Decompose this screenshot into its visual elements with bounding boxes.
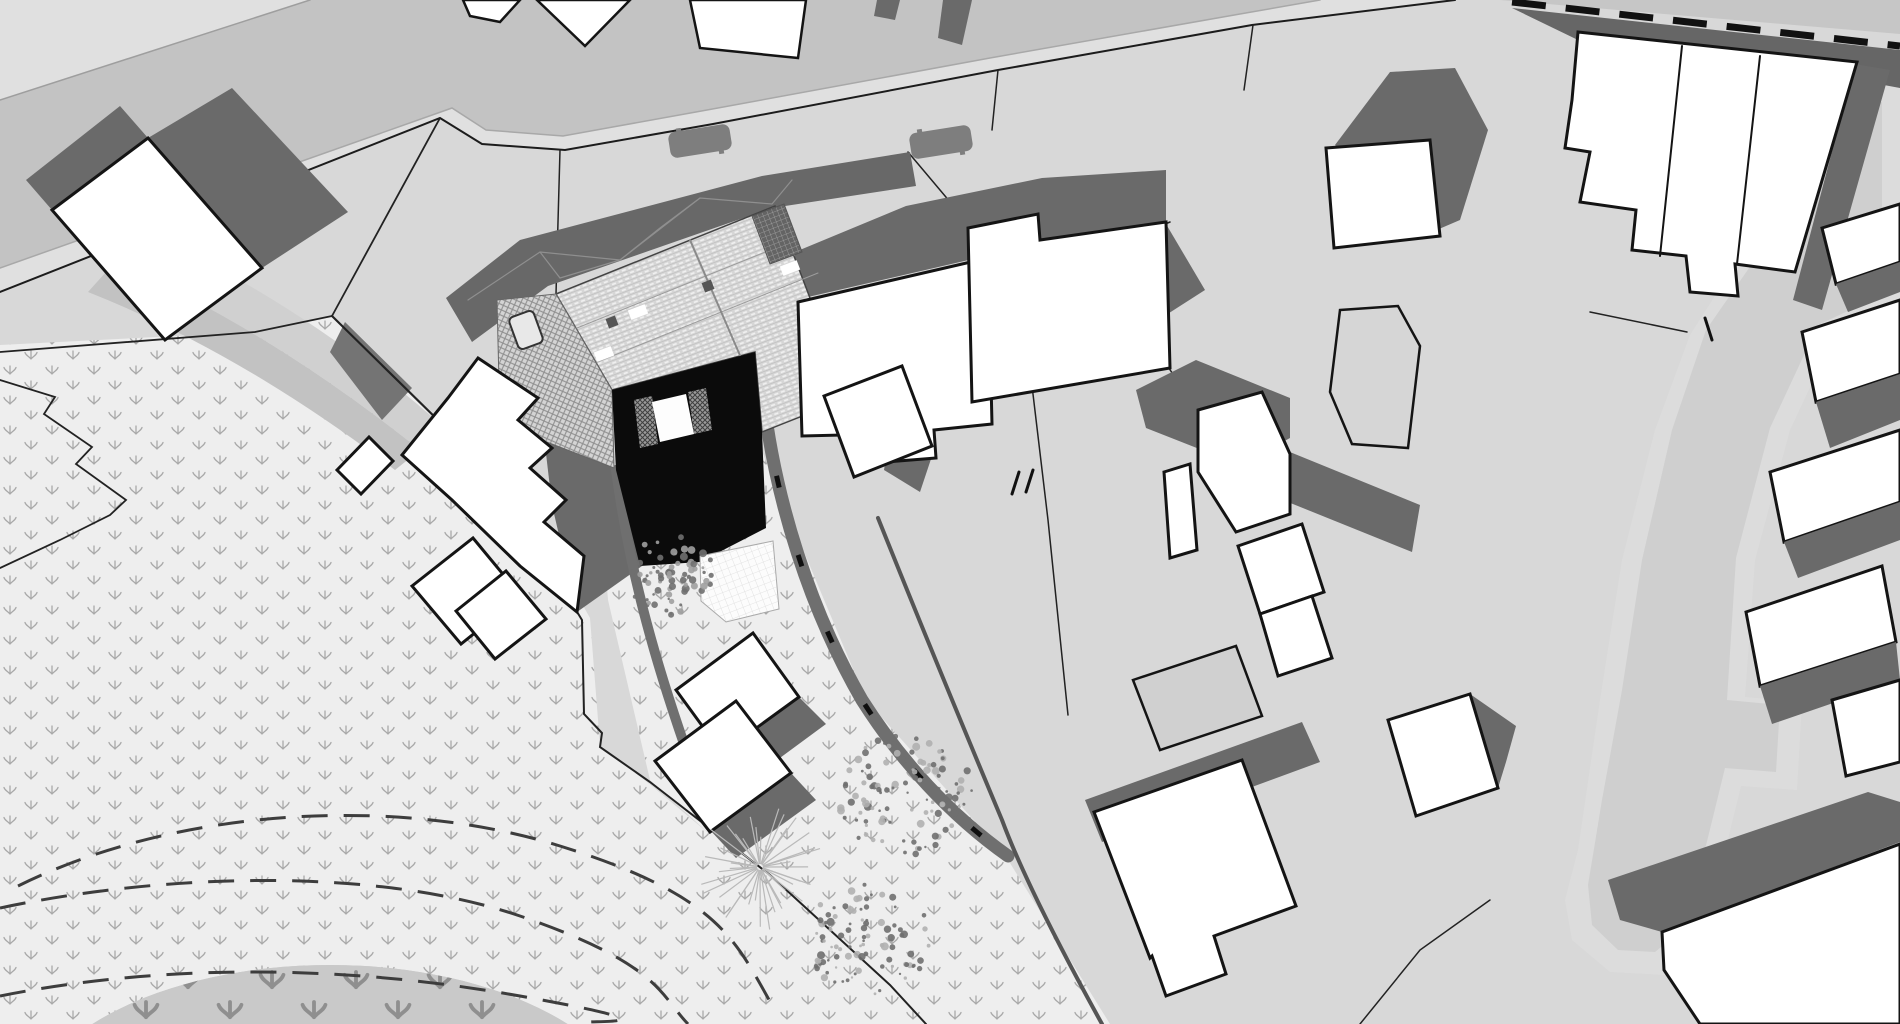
bush-cluster-dot (669, 564, 675, 570)
parcel-hexagon (1330, 306, 1420, 448)
tree-foliage-2-dot (846, 927, 852, 933)
bush-cluster-dot (656, 541, 660, 545)
tree-foliage-2-dot (878, 919, 885, 926)
tree-foliage-1-dot (932, 833, 939, 840)
tree-foliage-2-dot (817, 917, 823, 923)
tree-foliage-1-dot (924, 846, 926, 848)
tree-foliage-2-dot (888, 934, 895, 941)
tree-foliage-1-dot (875, 737, 882, 744)
bush-cluster-dot (680, 553, 688, 561)
tree-foliage-2-dot (861, 925, 867, 931)
tree-foliage-1-dot (917, 759, 923, 765)
tree-foliage-1-dot (935, 810, 942, 817)
tree-foliage-2-dot (827, 959, 830, 962)
tree-foliage-1-dot (861, 770, 864, 773)
bush-cluster-dot (646, 574, 649, 577)
tree-foliage-2-dot (922, 913, 927, 918)
building-b2 (968, 214, 1170, 402)
tree-foliage-2-dot (826, 912, 832, 918)
tree-foliage-1-dot (894, 750, 901, 757)
bush-cluster-dot (657, 555, 663, 561)
tree-foliage-2-dot (833, 980, 836, 983)
tree-foliage-1-dot (866, 774, 873, 781)
tree-foliage-2-dot (825, 971, 829, 975)
tree-foliage-2-dot (822, 939, 825, 942)
tree-foliage-1-dot (855, 819, 858, 822)
tree-foliage-1-dot (857, 836, 861, 840)
tree-foliage-1-dot (858, 811, 862, 815)
bush-cluster-dot (642, 542, 648, 548)
tree-foliage-1-dot (878, 809, 881, 812)
tree-foliage-1-dot (913, 775, 919, 781)
tree-foliage-2-dot (854, 972, 857, 975)
car-1-mirror-right (719, 149, 725, 154)
tree-foliage-2-dot (864, 896, 869, 901)
bush-cluster-dot (649, 571, 652, 574)
tree-foliage-2-dot (904, 962, 909, 967)
bush-cluster-dot (702, 571, 705, 574)
bush-cluster-dot (668, 598, 670, 600)
bush-cluster-dot (658, 575, 664, 581)
bush-cluster-dot (652, 566, 655, 569)
tree-foliage-1-dot (932, 842, 938, 848)
tree-foliage-2-dot (815, 932, 818, 935)
tree-foliage-2-dot (835, 966, 837, 968)
tree-foliage-1-dot (930, 810, 933, 813)
tree-foliage-2-dot (841, 980, 844, 983)
tree-foliage-2-dot (830, 946, 833, 949)
tree-foliage-1-dot (843, 782, 848, 787)
tree-foliage-2-dot (912, 965, 915, 968)
tree-foliage-1-dot (912, 769, 917, 774)
tree-foliage-1-dot (923, 767, 930, 774)
bush-cluster-dot (688, 567, 695, 574)
tree-foliage-2-dot (874, 992, 877, 995)
tree-foliage-1-dot (892, 741, 897, 746)
bush-cluster-dot (651, 601, 658, 608)
bush-cluster-dot (646, 598, 649, 601)
tree-foliage-1-dot (885, 806, 890, 811)
tree-foliage-1-dot (866, 763, 872, 769)
tree-foliage-1-dot (902, 839, 905, 842)
tree-foliage-1-dot (932, 767, 940, 775)
tree-foliage-2-dot (834, 944, 839, 949)
tree-foliage-1-dot (951, 810, 958, 817)
tree-foliage-1-dot (846, 767, 852, 773)
tree-foliage-1-dot (880, 839, 884, 843)
tree-foliage-2-dot (863, 883, 867, 887)
building-top-frag-2 (690, 0, 806, 58)
tree-foliage-1-dot (911, 839, 916, 844)
tree-foliage-2-dot (899, 973, 901, 975)
tree-foliage-1-dot (962, 803, 965, 806)
bush-cluster-dot (675, 561, 680, 566)
tree-foliage-2-dot (833, 914, 838, 919)
tree-foliage-1-dot (865, 824, 868, 827)
tree-foliage-2-dot (890, 944, 896, 950)
tree-foliage-2-dot (880, 943, 885, 948)
bush-cluster-dot (655, 587, 662, 594)
tree-foliage-1-dot (939, 766, 946, 773)
tree-foliage-1-dot (949, 823, 954, 828)
bush-cluster-dot (699, 549, 707, 557)
tree-foliage-1-dot (937, 749, 942, 754)
tree-foliage-1-dot (955, 782, 959, 786)
tree-foliage-2-dot (860, 908, 863, 911)
tree-foliage-1-dot (861, 797, 866, 802)
bush-cluster-dot (666, 592, 672, 598)
bush-cluster-dot (637, 560, 643, 566)
bush-cluster-dot (637, 572, 642, 577)
tree-foliage-2-dot (838, 933, 844, 939)
tree-foliage-1-dot (931, 800, 935, 804)
bush-cluster-dot (677, 608, 683, 614)
tree-foliage-1-dot (903, 781, 908, 786)
bush-cluster-dot (678, 534, 684, 540)
tree-foliage-2-dot (851, 976, 853, 978)
bush-cluster-dot (688, 546, 696, 554)
tree-foliage-1-dot (917, 846, 922, 851)
tree-foliage-2-dot (848, 945, 851, 948)
tree-foliage-1-dot (957, 791, 960, 794)
tree-foliage-2-dot (853, 896, 860, 903)
tree-foliage-2-dot (899, 933, 904, 938)
tree-foliage-2-dot (814, 964, 818, 968)
tree-foliage-2-dot (880, 964, 885, 969)
tree-foliage-1-dot (945, 790, 948, 793)
tree-foliage-2-dot (866, 934, 871, 939)
tree-foliage-1-dot (883, 759, 889, 765)
tree-foliage-1-dot (893, 734, 898, 739)
tree-foliage-2-dot (922, 926, 927, 931)
tree-bare-branch (760, 837, 761, 864)
tree-foliage-1-dot (864, 746, 868, 750)
bush-cluster-dot (635, 573, 638, 576)
tree-foliage-2-dot (861, 918, 864, 921)
tree-foliage-2-dot (824, 921, 828, 925)
tree-foliage-2-dot (838, 947, 842, 951)
tree-foliage-1-dot (884, 787, 890, 793)
tree-foliage-1-dot (917, 820, 925, 828)
tree-foliage-2-dot (898, 927, 903, 932)
tree-foliage-1-dot (970, 789, 973, 792)
tree-foliage-1-dot (912, 851, 919, 858)
bush-cluster-dot (679, 603, 682, 606)
tree-foliage-1-dot (878, 818, 885, 825)
bush-cluster-dot (708, 557, 713, 562)
bush-cluster-dot (668, 612, 674, 618)
tree-foliage-2-dot (829, 928, 833, 932)
tree-foliage-1-dot (852, 793, 859, 800)
tree-foliage-1-dot (892, 787, 895, 790)
tree-foliage-2-dot (891, 965, 894, 968)
tree-foliage-1-dot (945, 793, 953, 801)
bush-cluster-dot (629, 569, 635, 575)
tree-foliage-1-dot (871, 838, 876, 843)
tree-foliage-1-dot (864, 832, 869, 837)
tree-foliage-1-dot (927, 763, 931, 767)
tree-foliage-1-dot (958, 777, 965, 784)
tree-foliage-1-dot (843, 816, 847, 820)
tree-foliage-2-dot (862, 939, 865, 942)
tree-foliage-1-dot (888, 821, 891, 824)
tree-foliage-1-dot (945, 802, 948, 805)
bush-cluster-dot (667, 574, 673, 580)
bush-cluster-dot (689, 576, 696, 583)
tree-foliage-1-dot (861, 780, 866, 785)
building-l15-slim (1164, 464, 1197, 558)
tree-foliage-2-dot (917, 966, 922, 971)
building-7 (1326, 140, 1440, 248)
bush-cluster-dot (691, 583, 698, 590)
tree-foliage-1-dot (903, 851, 907, 855)
car-1-mirror-left (676, 128, 682, 133)
tree-foliage-2-dot (879, 892, 885, 898)
tree-foliage-2-dot (892, 923, 896, 927)
tree-foliage-2-dot (904, 976, 907, 979)
tree-foliage-1-dot (862, 749, 869, 756)
tree-foliage-1-dot (943, 827, 949, 833)
tree-foliage-1-dot (926, 740, 933, 747)
plan-layers (0, 0, 1900, 1024)
tree-foliage-2-dot (834, 954, 840, 960)
tree-foliage-2-dot (818, 902, 823, 907)
tree-foliage-2-dot (846, 978, 850, 982)
tree-foliage-1-dot (909, 750, 914, 755)
tree-foliage-1-dot (914, 736, 919, 741)
bush-cluster-dot (645, 580, 651, 586)
tree-foliage-1-dot (876, 787, 881, 792)
tree-foliage-2-dot (907, 951, 914, 958)
tree-foliage-2-dot (886, 957, 892, 963)
tree-foliage-2-dot (856, 968, 862, 974)
tree-foliage-1-dot (936, 787, 941, 792)
tree-foliage-2-dot (858, 953, 865, 960)
tree-foliage-2-dot (870, 893, 873, 896)
tree-foliage-2-dot (889, 894, 896, 901)
tree-foliage-2-dot (821, 974, 828, 981)
tree-foliage-2-dot (847, 906, 854, 913)
car-2-mirror-left (917, 129, 923, 134)
tree-foliage-1-dot (864, 819, 869, 824)
tree-foliage-1-dot (910, 808, 914, 812)
tree-foliage-1-dot (883, 742, 886, 745)
tree-foliage-1-dot (964, 767, 971, 774)
bush-cluster-dot (709, 573, 714, 578)
bush-cluster-dot (682, 572, 687, 577)
bush-cluster-dot (684, 583, 688, 587)
tree-foliage-1-dot (931, 762, 937, 768)
tree-foliage-1-dot (937, 774, 941, 778)
tree-foliage-2-dot (833, 906, 836, 909)
tree-foliage-2-dot (917, 957, 924, 964)
site-plan-canvas[interactable] (0, 0, 1900, 1024)
tree-foliage-1-dot (905, 758, 910, 763)
courtyard-black (612, 352, 766, 566)
tree-foliage-1-dot (958, 805, 961, 808)
bush-cluster-dot (690, 561, 697, 568)
bush-cluster-dot (652, 593, 655, 596)
tree-foliage-1-dot (837, 807, 845, 815)
tree-foliage-1-dot (952, 795, 959, 802)
bush-cluster-dot (648, 550, 652, 554)
tree-foliage-1-dot (924, 810, 929, 815)
bush-cluster-dot (664, 609, 668, 613)
bush-cluster-dot (681, 546, 688, 553)
bush-cluster-dot (647, 601, 651, 605)
tree-foliage-2-dot (849, 923, 852, 926)
tree-foliage-1-dot (848, 799, 855, 806)
tree-foliage-2-dot (878, 989, 881, 992)
tree-foliage-2-dot (894, 906, 897, 909)
tree-foliage-1-dot (887, 744, 892, 749)
tree-foliage-2-dot (848, 887, 856, 895)
tree-foliage-2-dot (864, 904, 869, 909)
tree-foliage-2-dot (884, 926, 891, 933)
tree-foliage-1-dot (948, 808, 951, 811)
tree-foliage-1-dot (912, 743, 920, 751)
tree-foliage-1-dot (855, 756, 863, 764)
tree-foliage-2-dot (817, 959, 822, 964)
car-2-mirror-right (960, 150, 966, 155)
bush-cluster-dot (701, 583, 708, 590)
tree-foliage-1-dot (906, 792, 908, 794)
tree-foliage-1-dot (926, 799, 928, 801)
tree-foliage-2-dot (861, 943, 865, 947)
tree-foliage-2-dot (862, 935, 866, 939)
tree-foliage-2-dot (865, 919, 868, 922)
tree-foliage-1-dot (939, 801, 945, 807)
bush-cluster-dot (633, 595, 637, 599)
site-plan (0, 0, 1900, 1024)
tree-foliage-2-dot (845, 953, 852, 960)
bush-cluster-dot (701, 566, 704, 569)
tree-foliage-1-dot (941, 756, 945, 760)
bush-cluster-dot (669, 583, 676, 590)
tree-foliage-1-dot (871, 806, 875, 810)
bush-cluster-dot (670, 548, 677, 555)
tree-foliage-2-dot (927, 944, 931, 948)
patio-terrace (700, 541, 779, 622)
